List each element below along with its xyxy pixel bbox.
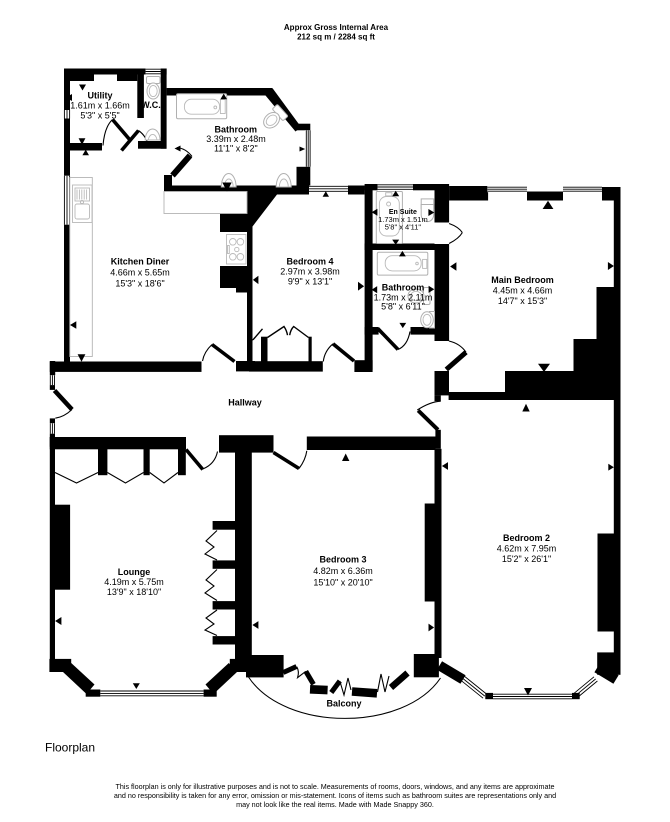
svg-text:Utility: Utility (87, 91, 112, 101)
svg-text:Bathroom: Bathroom (215, 125, 258, 135)
svg-text:W.C.: W.C. (141, 100, 161, 110)
svg-text:14'7" x 15'3": 14'7" x 15'3" (498, 296, 547, 306)
svg-text:4.45m x 4.66m: 4.45m x 4.66m (493, 286, 553, 296)
svg-text:Bedroom 4: Bedroom 4 (286, 257, 333, 267)
svg-text:11'1" x 8'2": 11'1" x 8'2" (214, 143, 258, 153)
svg-text:15'10" x 20'10": 15'10" x 20'10" (313, 578, 372, 588)
svg-text:4.62m x 7.95m: 4.62m x 7.95m (497, 544, 557, 554)
svg-text:Bedroom 3: Bedroom 3 (319, 555, 366, 565)
svg-text:4.19m x 5.75m: 4.19m x 5.75m (104, 577, 164, 587)
svg-text:Floorplan: Floorplan (45, 741, 95, 755)
svg-text:5'8" x 6'11": 5'8" x 6'11" (381, 301, 425, 311)
svg-text:212 sq m / 2284 sq ft: 212 sq m / 2284 sq ft (297, 33, 375, 42)
svg-text:Hallway: Hallway (228, 398, 262, 408)
svg-text:and no responsibility is taken: and no responsibility is taken for any e… (114, 791, 556, 800)
svg-text:5'8" x 4'11": 5'8" x 4'11" (385, 223, 422, 232)
svg-text:15'2" x 26'1": 15'2" x 26'1" (502, 554, 551, 564)
svg-text:5'3" x 5'5": 5'3" x 5'5" (80, 111, 119, 121)
svg-text:Main Bedroom: Main Bedroom (491, 275, 554, 285)
svg-text:Approx Gross Internal Area: Approx Gross Internal Area (284, 23, 389, 32)
svg-text:This floorplan is only for ill: This floorplan is only for illustrative … (115, 782, 554, 791)
svg-text:9'9" x 13'1": 9'9" x 13'1" (288, 277, 332, 287)
svg-text:2.97m x 3.98m: 2.97m x 3.98m (280, 267, 340, 277)
svg-text:Lounge: Lounge (118, 567, 151, 577)
svg-text:Balcony: Balcony (326, 699, 361, 709)
svg-text:13'9" x 18'10": 13'9" x 18'10" (107, 587, 161, 597)
svg-text:Kitchen Diner: Kitchen Diner (111, 257, 170, 267)
svg-text:Bedroom 2: Bedroom 2 (503, 533, 550, 543)
svg-text:4.66m x 5.65m: 4.66m x 5.65m (110, 268, 170, 278)
svg-text:may not look like the real ite: may not look like the real items. Made w… (236, 800, 434, 809)
svg-text:1.61m x 1.66m: 1.61m x 1.66m (70, 101, 130, 111)
svg-text:15'3" x 18'6": 15'3" x 18'6" (115, 279, 164, 289)
svg-text:4.82m x 6.36m: 4.82m x 6.36m (313, 566, 373, 576)
svg-text:Bathroom: Bathroom (382, 283, 425, 293)
